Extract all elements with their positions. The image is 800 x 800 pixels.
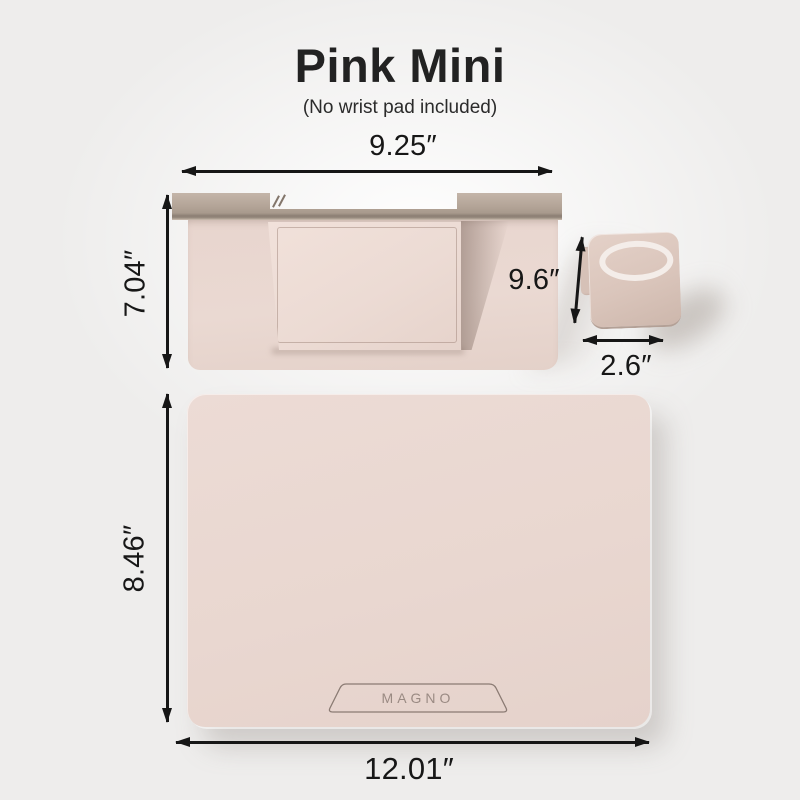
product-dimension-diagram: Pink Mini (No wrist pad included) 9.25″ … xyxy=(0,0,800,800)
mousepad-height-label: 8.46″ xyxy=(119,489,152,629)
phone-stand-width-arrow xyxy=(583,339,663,342)
mousepad-height-arrow xyxy=(166,394,169,722)
keyboard-width-label: 9.25″ xyxy=(253,130,553,163)
brand-logo: MAGNO xyxy=(382,690,455,706)
kickstand-flap xyxy=(267,222,463,350)
keyboard-width-arrow xyxy=(182,170,552,173)
mousepad-width-arrow xyxy=(176,741,649,744)
keyboard-height-arrow xyxy=(166,195,169,368)
kickstand-flap-panel xyxy=(277,227,457,343)
brand-badge: MAGNO xyxy=(325,681,511,715)
mousepad-width-label: 12.01″ xyxy=(259,751,559,787)
phone-stand-width-label: 2.6″ xyxy=(566,350,686,383)
page-title: Pink Mini xyxy=(0,38,800,93)
mousepad xyxy=(187,394,650,727)
page-subtitle: (No wrist pad included) xyxy=(0,97,800,119)
keyboard-top-bar xyxy=(172,193,562,220)
magsafe-ring-icon xyxy=(599,240,674,283)
phone-stand xyxy=(587,231,681,329)
keyboard-height-label: 7.04″ xyxy=(120,214,153,354)
